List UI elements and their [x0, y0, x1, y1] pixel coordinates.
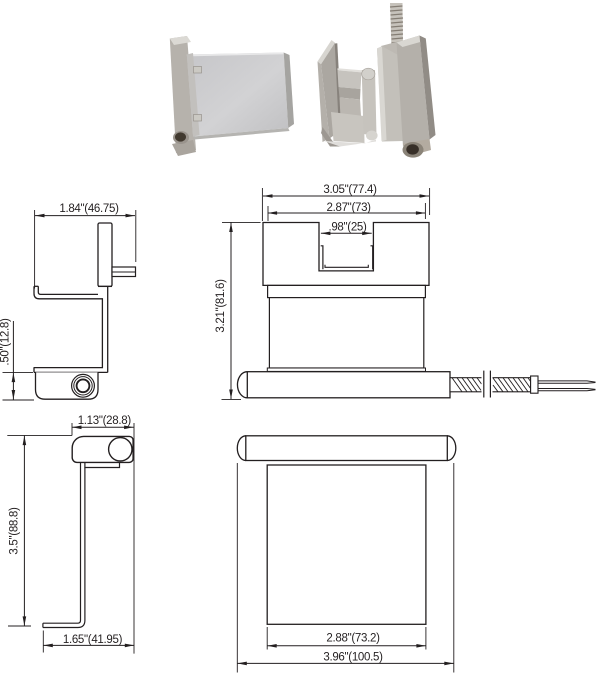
- svg-text:1.13"(28.8): 1.13"(28.8): [78, 415, 132, 427]
- svg-text:3.96"(100.5): 3.96"(100.5): [323, 652, 383, 664]
- svg-text:3.21"(81.6): 3.21"(81.6): [215, 279, 227, 333]
- svg-text:3.05"(77.4): 3.05"(77.4): [323, 184, 377, 196]
- svg-text:.50"(12.8): .50"(12.8): [0, 318, 12, 366]
- svg-text:1.65"(41.95): 1.65"(41.95): [63, 634, 123, 646]
- svg-text:2.87"(73): 2.87"(73): [326, 202, 371, 214]
- svg-text:.98"(25): .98"(25): [328, 222, 367, 234]
- svg-text:1.84"(46.75): 1.84"(46.75): [59, 203, 119, 215]
- svg-text:2.88"(73.2): 2.88"(73.2): [326, 633, 380, 645]
- svg-text:3.5"(88.8): 3.5"(88.8): [9, 507, 21, 555]
